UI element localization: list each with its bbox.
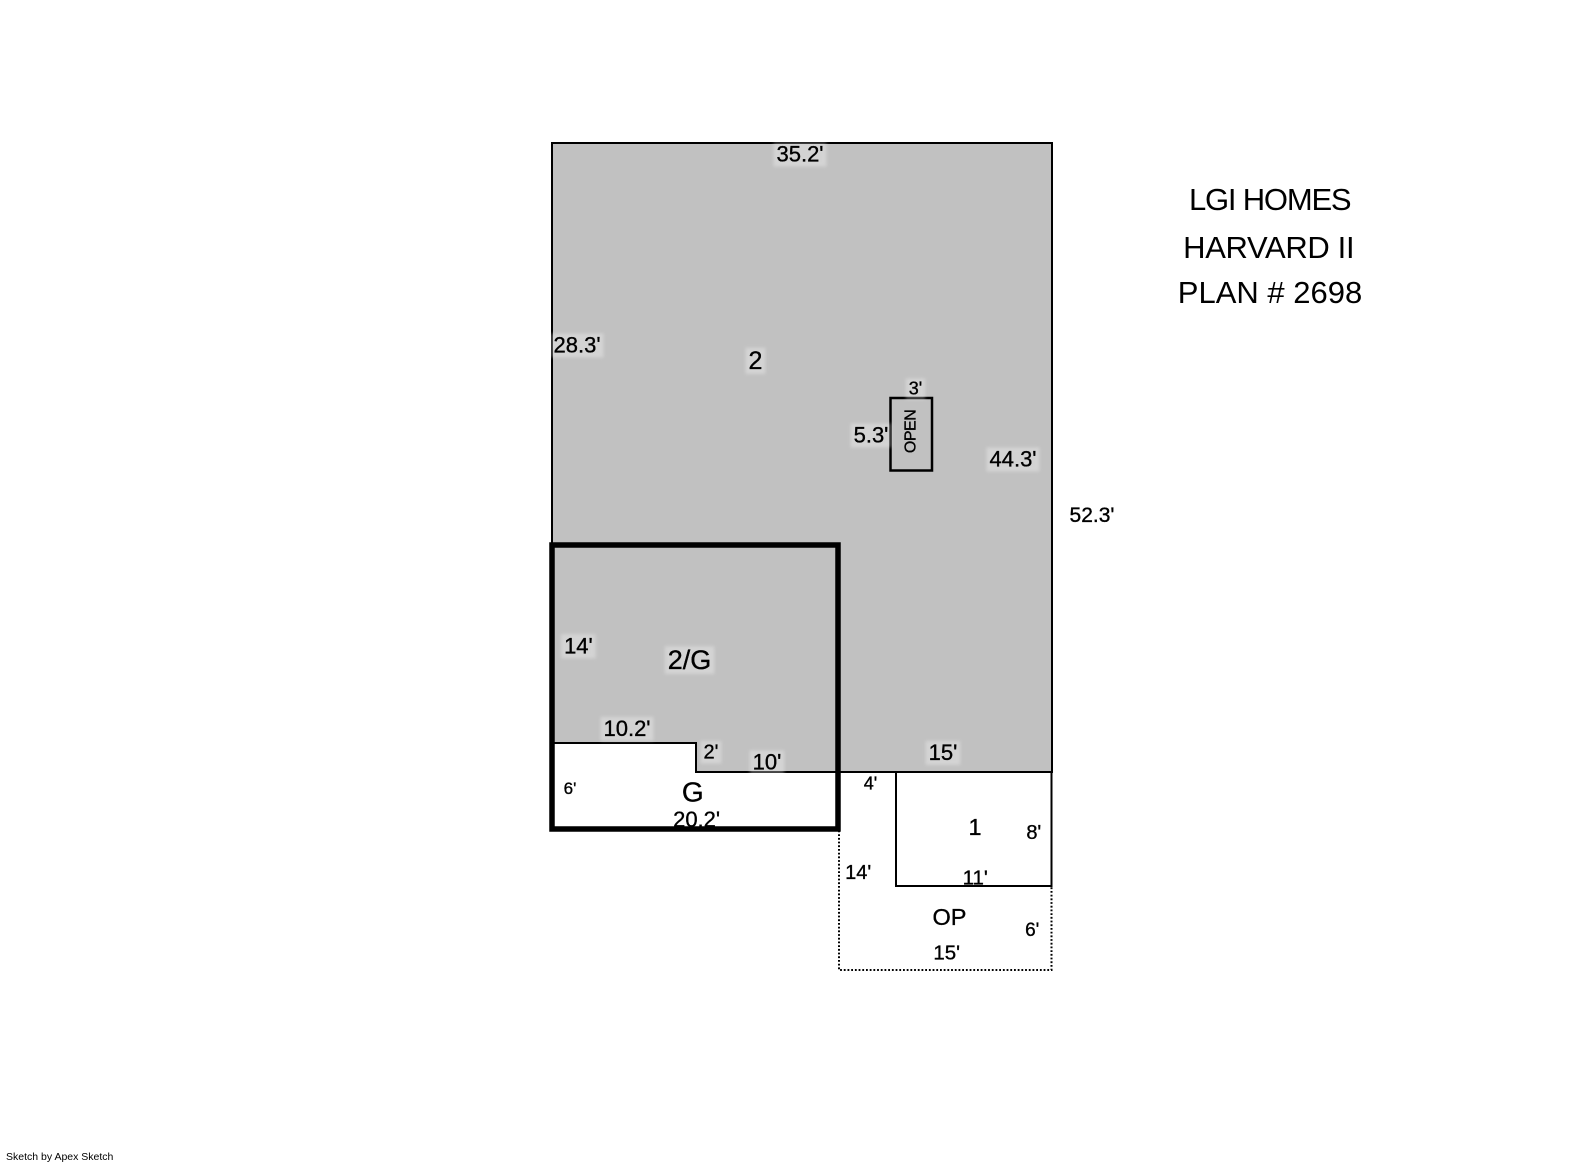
svg-text:1: 1: [968, 814, 981, 840]
svg-text:44.3': 44.3': [989, 447, 1036, 472]
svg-text:6': 6': [564, 779, 577, 798]
svg-text:11': 11': [963, 866, 988, 889]
svg-text:10.2': 10.2': [603, 716, 650, 741]
svg-text:15': 15': [933, 942, 960, 965]
svg-text:5.3': 5.3': [854, 423, 889, 448]
svg-text:2': 2': [704, 742, 719, 764]
svg-text:PLAN # 2698: PLAN # 2698: [1178, 275, 1362, 310]
svg-text:14': 14': [564, 633, 593, 658]
svg-text:LGI HOMES: LGI HOMES: [1189, 182, 1351, 217]
svg-text:2: 2: [749, 347, 763, 375]
svg-text:20.2': 20.2': [673, 807, 720, 832]
svg-text:3': 3': [909, 379, 922, 399]
svg-text:15': 15': [929, 740, 958, 765]
svg-text:28.3': 28.3': [554, 333, 601, 358]
svg-text:14': 14': [845, 862, 871, 884]
svg-text:2/G: 2/G: [668, 645, 712, 675]
svg-text:6': 6': [1025, 920, 1039, 941]
svg-text:OP: OP: [933, 904, 967, 930]
svg-text:Sketch by Apex Sketch: Sketch by Apex Sketch: [6, 1151, 114, 1163]
svg-text:52.3': 52.3': [1070, 504, 1115, 527]
svg-text:4': 4': [864, 774, 877, 794]
svg-text:G: G: [682, 777, 704, 808]
svg-text:HARVARD II: HARVARD II: [1183, 230, 1354, 265]
svg-text:10': 10': [753, 750, 782, 775]
svg-text:8': 8': [1026, 822, 1041, 844]
svg-text:OPEN: OPEN: [903, 410, 920, 453]
svg-text:35.2': 35.2': [776, 142, 823, 167]
